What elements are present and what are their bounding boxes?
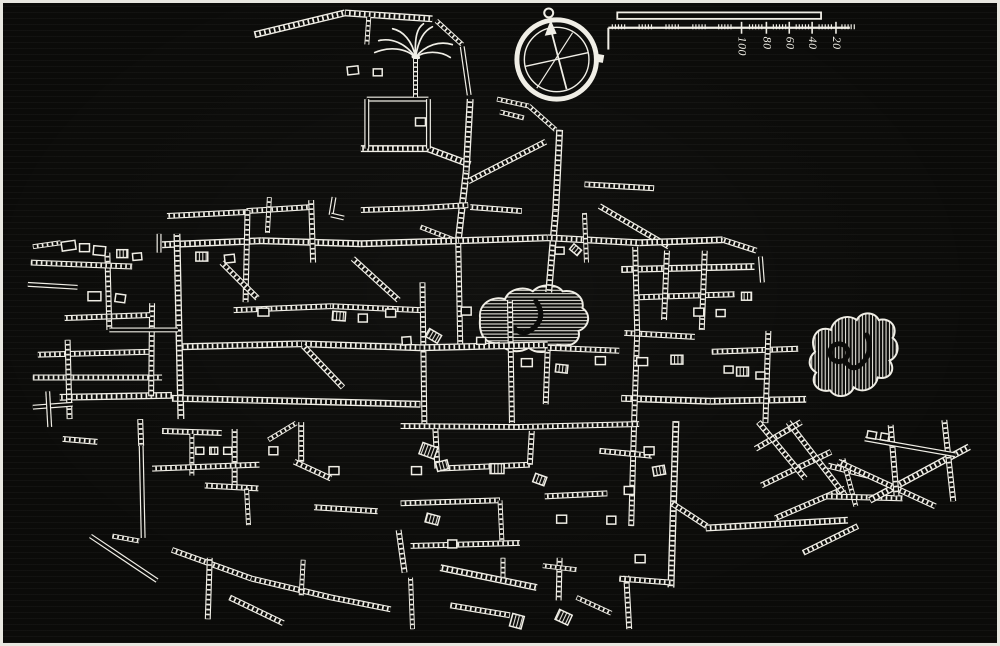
ladder-street (172, 398, 301, 401)
ladder-street (177, 234, 179, 330)
ladder-street (31, 263, 132, 267)
hatched-block (332, 311, 346, 321)
ladder-street (247, 207, 312, 211)
building-block (555, 247, 564, 254)
ladder-street (68, 340, 70, 419)
ladder-street (301, 401, 420, 404)
ladder-street (470, 207, 522, 211)
ladder-street (458, 238, 547, 241)
hatched-block (652, 465, 665, 476)
ladder-street (621, 267, 754, 270)
building-block (93, 246, 106, 256)
ladder-street (182, 344, 301, 347)
ladder-street (311, 200, 313, 262)
ladder-street (222, 263, 258, 299)
ladder-street (437, 465, 529, 469)
compass-rose (517, 8, 604, 99)
ladder-street (545, 493, 608, 496)
ladder-street (179, 330, 181, 419)
plain-street (28, 284, 78, 287)
hatched-block (671, 355, 683, 364)
ladder-street (775, 488, 845, 518)
plain-street (33, 404, 73, 407)
ladder-street (712, 349, 798, 352)
building-block (80, 244, 90, 252)
ladder-street (420, 205, 468, 208)
building-block (224, 254, 235, 263)
scale-label: 60 (783, 37, 797, 50)
scale-label: 80 (760, 37, 774, 50)
building-block (635, 555, 645, 563)
ladder-street (33, 243, 61, 247)
ladder-street (361, 241, 458, 244)
building-block (386, 309, 396, 317)
hatched-block (210, 447, 218, 454)
building-block (412, 467, 422, 475)
ladder-street (167, 212, 247, 216)
ladder-street (559, 558, 560, 601)
building-block (373, 69, 382, 76)
plain-street (48, 391, 50, 427)
ladder-street (466, 99, 470, 171)
ladder-street (314, 507, 378, 511)
ladder-street (635, 247, 637, 333)
ladder-street (577, 597, 612, 613)
ladder-street (619, 579, 671, 583)
ladder-street (60, 395, 172, 397)
scale-label: 40 (806, 37, 820, 50)
building-block (196, 447, 204, 454)
ladder-street (331, 306, 420, 310)
ladder-street (664, 251, 667, 320)
ladder-street (353, 259, 399, 301)
ladder-street (788, 422, 845, 495)
ladder-street (672, 503, 707, 526)
ladder-street (252, 579, 332, 598)
ladder-street (367, 17, 369, 45)
ladder-street (267, 197, 269, 233)
building-block (644, 447, 654, 455)
building-block (448, 540, 457, 548)
ladder-street (63, 439, 98, 442)
ladder-street (584, 213, 586, 263)
ladder-street (500, 500, 502, 543)
ladder-street (450, 605, 510, 615)
building-block (477, 337, 486, 344)
ladder-street (436, 21, 462, 45)
compass-ornament-ring (544, 8, 553, 17)
building-block (115, 294, 126, 303)
ladder-street (803, 526, 858, 553)
ladder-street (765, 331, 768, 423)
ladder-street (140, 419, 141, 446)
ladder-street (420, 345, 547, 348)
hatched-block (425, 513, 440, 525)
ladder-street (152, 465, 259, 469)
hatched-block (555, 609, 572, 625)
hatched-block (117, 250, 128, 258)
ladder-street (529, 106, 556, 130)
ladder-street (631, 419, 634, 526)
ladder-street (361, 208, 421, 210)
map: 10080604020 (0, 0, 1000, 646)
ladder-street (294, 462, 331, 479)
building-block (595, 357, 605, 365)
ladder-street (520, 424, 639, 427)
scale-bar: 10080604020 (608, 12, 854, 56)
ladder-street (639, 240, 722, 243)
ladder-street (548, 238, 639, 243)
building-block (88, 292, 101, 301)
hatched-block (196, 252, 208, 261)
ladder-street (826, 496, 903, 498)
hatched-block (742, 292, 752, 300)
ladder-street (440, 568, 536, 588)
ladder-street (401, 500, 500, 503)
building-block (269, 447, 278, 455)
ladder-street (556, 130, 560, 211)
plain-street (760, 257, 762, 283)
ladder-street (331, 597, 391, 609)
ladder-street (208, 558, 210, 619)
building-block (358, 314, 367, 322)
ladder-street (247, 488, 249, 525)
building-block (329, 467, 339, 475)
ladder-street (723, 240, 757, 251)
building-block (347, 66, 359, 75)
ladder-street (411, 578, 413, 630)
ladder-street (38, 352, 152, 355)
map-canvas: 10080604020 (3, 3, 997, 643)
ladder-street (254, 13, 344, 35)
hatched-block (509, 613, 524, 629)
ladder-street (548, 348, 620, 351)
building-block (132, 253, 142, 261)
building-block (557, 515, 567, 523)
ladder-street (205, 485, 259, 488)
ladder-street (345, 13, 432, 19)
plain-street (865, 439, 955, 455)
building-block (624, 486, 634, 494)
building-block (258, 308, 269, 316)
building-block (607, 516, 616, 524)
building-block (416, 118, 426, 126)
ladder-street (497, 99, 529, 106)
ladder-street (411, 543, 520, 546)
ladder-street (500, 112, 524, 118)
ladder-street (458, 244, 460, 345)
ladder-street (711, 399, 806, 401)
hatched-areas (480, 285, 898, 396)
building-block (461, 307, 471, 315)
hatched-block (425, 329, 442, 344)
ladder-street (230, 597, 284, 623)
building-block (756, 372, 765, 379)
ladder-street (626, 576, 629, 629)
hatched-block (555, 364, 568, 373)
hatched-block (533, 473, 547, 485)
ladder-street (162, 431, 222, 433)
ladder-street (530, 431, 532, 465)
hatched-block (490, 464, 504, 474)
plain-street (90, 536, 157, 581)
ladder-street (303, 346, 343, 388)
ladder-street (112, 536, 139, 541)
scale-label: 20 (830, 37, 844, 50)
ladder-street (510, 300, 512, 423)
ladder-street (151, 303, 152, 396)
ladder-street (268, 423, 296, 440)
hatched-block (737, 367, 749, 376)
palm-fronds (375, 24, 453, 59)
ladder-street (301, 560, 303, 596)
plain-street (331, 197, 334, 215)
building-block (724, 366, 733, 373)
building-block (61, 240, 76, 251)
ladder-street (399, 530, 405, 573)
plain-street (462, 47, 469, 96)
ladder-street (65, 315, 150, 318)
building-block (224, 447, 232, 454)
ladder-street (706, 520, 848, 528)
ladder-street (543, 566, 577, 570)
building-block (716, 310, 725, 317)
building-block (880, 433, 889, 441)
plain-street (331, 215, 344, 218)
building-block (694, 308, 704, 316)
ladder-street (702, 251, 705, 330)
hatched-block (570, 244, 582, 256)
building-block (867, 431, 877, 439)
ladder-street (468, 142, 546, 182)
scale-label: 100 (736, 37, 750, 56)
ladder-street (401, 426, 520, 427)
building-block (521, 359, 532, 367)
palm-tree-icon (375, 24, 453, 97)
ladder-street (234, 306, 331, 310)
ladder-street (422, 282, 424, 429)
hatched-area-east (810, 313, 898, 396)
ladder-street (634, 333, 637, 419)
ladder-street (584, 184, 654, 188)
building-block (637, 358, 648, 366)
ladder-street (546, 348, 548, 404)
plain-street (141, 446, 143, 538)
scale-bar-outline (617, 12, 821, 18)
ladder-street (639, 294, 734, 297)
building-block (402, 337, 411, 346)
